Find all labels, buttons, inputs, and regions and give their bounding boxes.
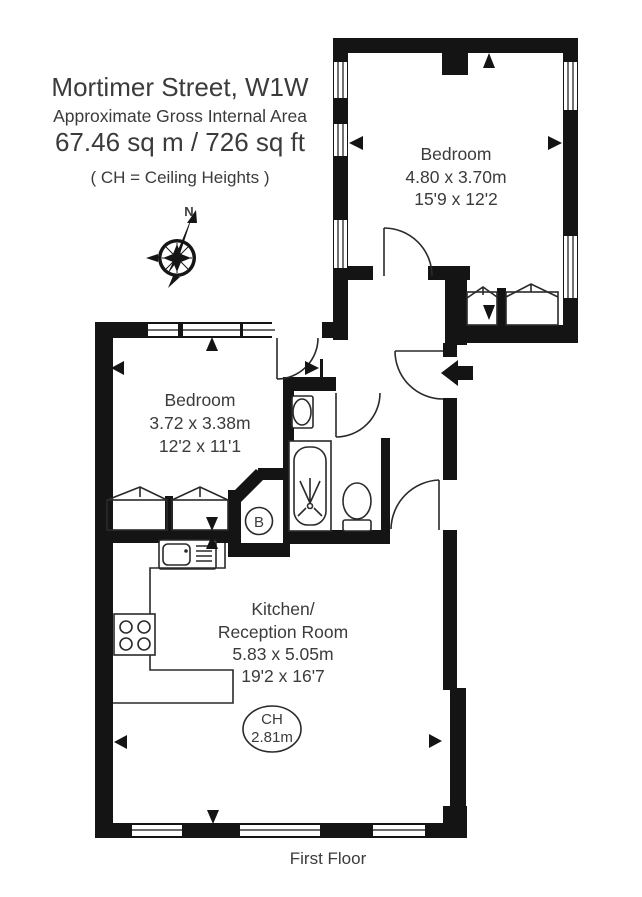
arrow-marker-icon <box>548 136 562 150</box>
bedroom2-name: Bedroom <box>164 390 235 410</box>
floorplan-page: Mortimer Street, W1W Approximate Gross I… <box>0 0 642 897</box>
bedroom1-size-ft: 15'9 x 12'2 <box>414 189 498 209</box>
kitchen-size-ft: 19'2 x 16'7 <box>241 666 325 686</box>
kitchen-label: Kitchen/ Reception Room 5.83 x 5.05m 19'… <box>218 599 348 686</box>
toilet-icon <box>343 483 371 531</box>
kitchen-name-line1: Kitchen/ <box>251 599 314 619</box>
header-ceiling-note: ( CH = Ceiling Heights ) <box>90 168 269 187</box>
arrow-marker-icon <box>483 53 495 68</box>
floor-label: First Floor <box>290 849 367 868</box>
arrow-marker-icon <box>206 517 218 531</box>
compass-north-label: N <box>184 204 193 219</box>
kitchen-size-m: 5.83 x 5.05m <box>232 644 333 664</box>
kitchen-name-line2: Reception Room <box>218 622 348 642</box>
bedroom1-door <box>384 228 432 276</box>
ceiling-height-badge: CH 2.81m <box>243 706 301 752</box>
door-stop-marker <box>320 359 323 377</box>
page-title: Mortimer Street, W1W <box>51 72 309 102</box>
bedroom1-name: Bedroom <box>420 144 491 164</box>
bathroom-fixtures <box>289 396 371 531</box>
ch-label: CH <box>261 711 283 728</box>
bedroom2-label: Bedroom 3.72 x 3.38m 12'2 x 11'1 <box>149 390 250 456</box>
header-block: Mortimer Street, W1W Approximate Gross I… <box>51 72 309 187</box>
header-subtitle: Approximate Gross Internal Area <box>53 106 307 126</box>
bedroom1-label: Bedroom 4.80 x 3.70m 15'9 x 12'2 <box>405 144 506 209</box>
hob-icon <box>114 614 155 655</box>
compass-icon: N <box>146 204 197 288</box>
arrow-marker-icon <box>206 337 218 351</box>
arrow-marker-icon <box>114 735 127 749</box>
bathroom-door <box>336 393 380 437</box>
kitchen-sink-icon <box>159 540 216 569</box>
floorplan-drawing: Mortimer Street, W1W Approximate Gross I… <box>0 0 642 897</box>
arrow-marker-icon <box>429 734 442 748</box>
arrow-marker-icon <box>305 361 319 375</box>
front-door <box>395 351 443 399</box>
header-area: 67.46 sq m / 726 sq ft <box>55 127 306 157</box>
bedroom2-size-m: 3.72 x 3.38m <box>149 413 250 433</box>
bedroom2-size-ft: 12'2 x 11'1 <box>159 436 241 456</box>
reception-door <box>391 480 439 530</box>
boiler-label: B <box>254 514 264 531</box>
boiler-badge: B <box>246 508 273 535</box>
bedroom2-door <box>277 338 318 379</box>
ch-value: 2.81m <box>251 729 293 746</box>
arrow-marker-icon <box>349 136 363 150</box>
arrow-marker-icon <box>207 810 219 824</box>
basin-icon <box>292 396 313 428</box>
bedroom1-size-m: 4.80 x 3.70m <box>405 167 506 187</box>
entrance-arrow-icon <box>441 360 473 386</box>
kitchen-fixtures <box>113 540 233 703</box>
bathtub-icon <box>289 441 331 531</box>
arrow-marker-icon <box>483 305 495 320</box>
